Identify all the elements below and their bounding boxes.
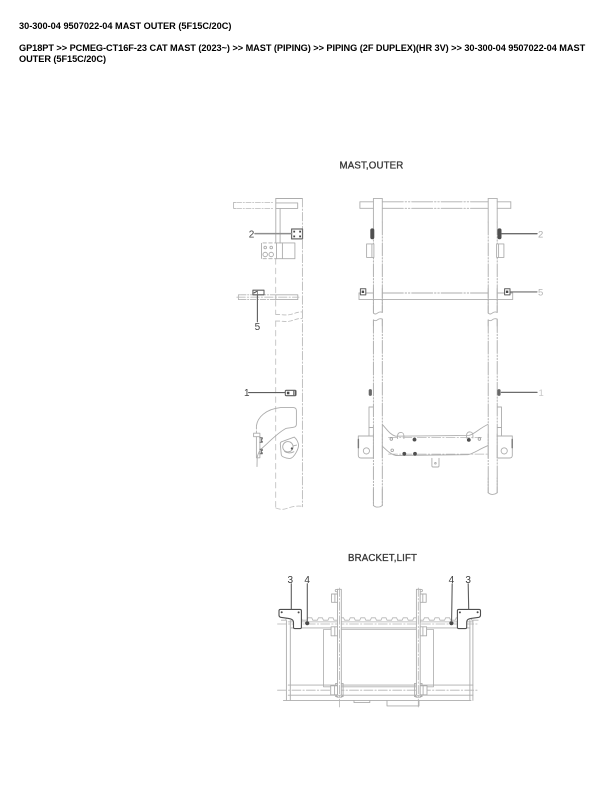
svg-text:1: 1 xyxy=(539,388,544,399)
svg-text:4: 4 xyxy=(304,575,310,586)
svg-text:2: 2 xyxy=(538,230,543,241)
svg-text:BRACKET,LIFT: BRACKET,LIFT xyxy=(348,553,417,564)
svg-text:3: 3 xyxy=(288,575,294,586)
svg-text:2: 2 xyxy=(249,229,255,240)
svg-text:5: 5 xyxy=(538,288,543,299)
svg-text:3: 3 xyxy=(465,575,471,586)
svg-text:5: 5 xyxy=(255,322,261,333)
svg-text:MAST,OUTER: MAST,OUTER xyxy=(340,160,404,171)
svg-text:4: 4 xyxy=(449,575,455,586)
svg-text:1: 1 xyxy=(244,388,250,399)
